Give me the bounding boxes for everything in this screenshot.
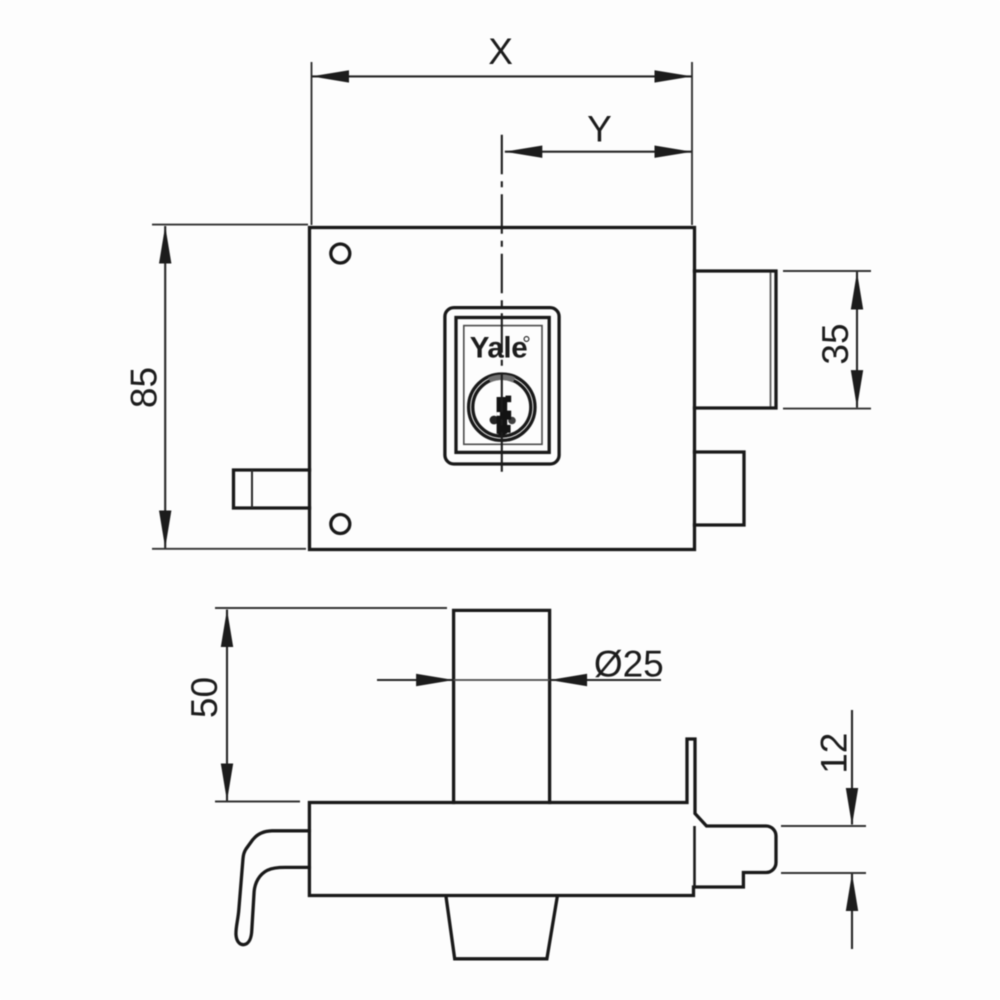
svg-text:X: X bbox=[488, 31, 513, 72]
svg-text:12: 12 bbox=[814, 733, 855, 774]
svg-text:Y: Y bbox=[587, 109, 612, 150]
svg-text:Yale: Yale bbox=[470, 332, 527, 365]
svg-text:50: 50 bbox=[184, 677, 225, 718]
svg-text:Ø25: Ø25 bbox=[594, 644, 664, 685]
svg-text:35: 35 bbox=[815, 323, 856, 364]
svg-text:85: 85 bbox=[124, 367, 165, 408]
